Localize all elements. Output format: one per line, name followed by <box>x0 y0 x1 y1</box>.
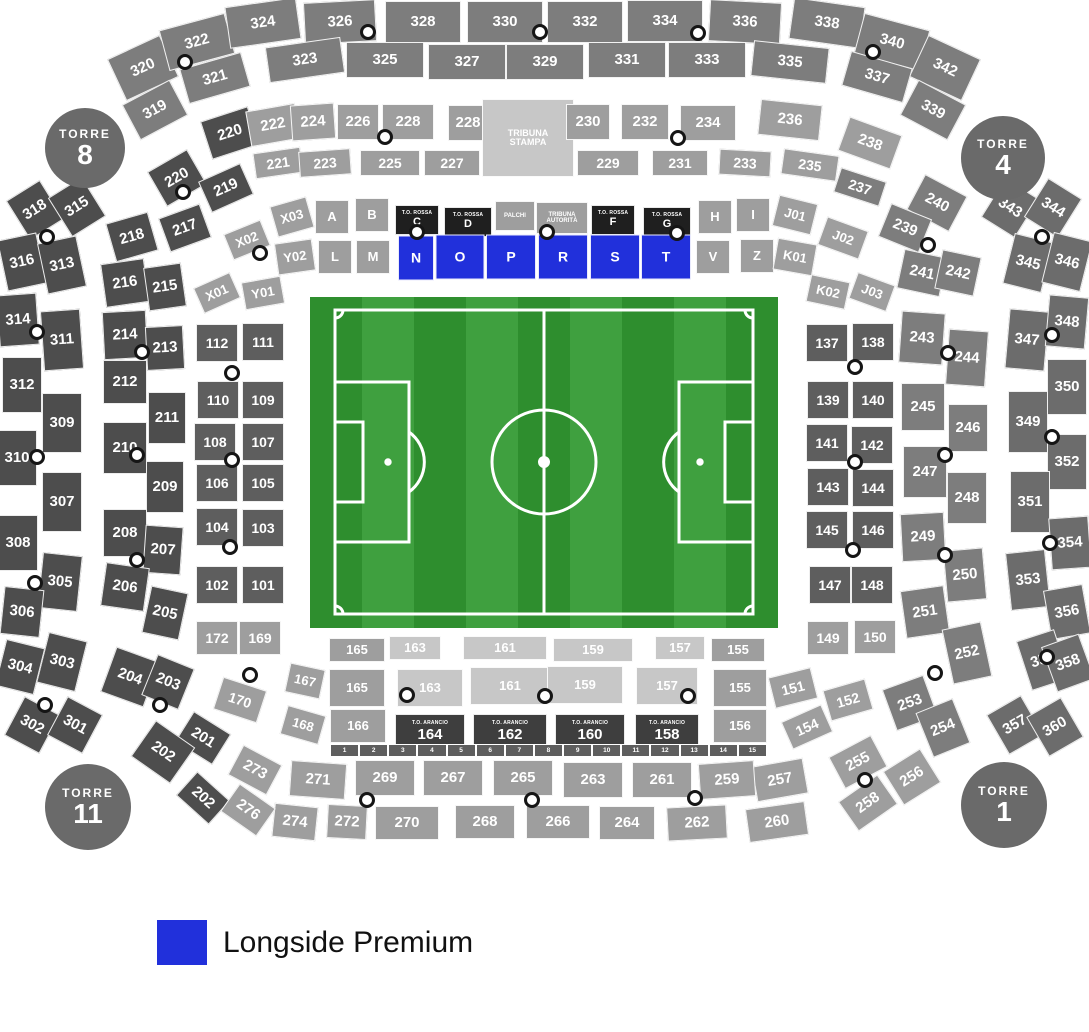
section-label: 335 <box>777 53 804 71</box>
gate-dot <box>175 184 191 200</box>
gate-dot <box>360 24 376 40</box>
section-v[interactable]: V <box>696 240 730 274</box>
section-label: 302 <box>17 712 46 738</box>
section-163[interactable]: 163 <box>389 636 441 660</box>
section-230[interactable]: 230 <box>566 104 610 140</box>
section-303[interactable]: 303 <box>36 632 87 692</box>
section-s[interactable]: S <box>590 235 640 280</box>
tower-4: TORRE4 <box>961 116 1045 200</box>
gate-dot <box>27 575 43 591</box>
section-label: 237 <box>847 176 874 197</box>
section-j01[interactable]: J01 <box>772 195 819 236</box>
section-label: 148 <box>860 578 883 593</box>
section-label: 141 <box>815 436 838 451</box>
section-label: 109 <box>251 393 274 408</box>
section-202[interactable]: 202 <box>176 771 230 824</box>
section-324[interactable]: 324 <box>224 0 301 49</box>
section-label: 106 <box>205 476 228 491</box>
section-label: 105 <box>251 476 274 491</box>
gate-dot <box>1039 649 1055 665</box>
section-label: I <box>751 208 755 222</box>
section-169[interactable]: 169 <box>239 621 281 655</box>
section-274[interactable]: 274 <box>271 803 318 841</box>
section-103[interactable]: 103 <box>242 509 284 547</box>
section-label: 248 <box>954 490 979 506</box>
section-338[interactable]: 338 <box>788 0 865 49</box>
section-t[interactable]: T <box>641 235 691 280</box>
section-145[interactable]: 145 <box>806 511 848 549</box>
section-301[interactable]: 301 <box>47 696 103 754</box>
section-304[interactable]: 304 <box>0 639 45 695</box>
section-label: V <box>709 250 718 264</box>
section-label: 316 <box>8 252 36 273</box>
section-327[interactable]: 327 <box>428 44 506 80</box>
section-label: 322 <box>183 31 211 53</box>
section-336[interactable]: 336 <box>708 0 782 45</box>
section-333[interactable]: 333 <box>668 42 746 78</box>
section-label: 240 <box>922 190 951 216</box>
section-z[interactable]: Z <box>740 239 774 273</box>
section-351[interactable]: 351 <box>1010 471 1050 533</box>
gate-dot <box>177 54 193 70</box>
row-strip-cell-5[interactable]: 5 <box>447 744 476 757</box>
section-label: 231 <box>668 156 691 171</box>
section-236[interactable]: 236 <box>757 99 822 141</box>
section-label: 217 <box>171 216 200 239</box>
section-palchi[interactable]: PALCHI <box>495 201 535 231</box>
section-label: 143 <box>816 480 839 495</box>
section-r[interactable]: R <box>538 235 588 280</box>
section-311[interactable]: 311 <box>40 309 84 372</box>
section-label: 328 <box>410 14 435 30</box>
section-label: 340 <box>878 31 906 53</box>
section-label: 352 <box>1054 454 1079 470</box>
section-110[interactable]: 110 <box>197 381 239 419</box>
section-label: 220 <box>216 122 245 145</box>
section-label: 353 <box>1015 571 1042 589</box>
section-151[interactable]: 151 <box>768 667 818 709</box>
section-223[interactable]: 223 <box>298 148 352 178</box>
section-x03[interactable]: X03 <box>269 196 314 237</box>
section-label: 165 <box>346 643 368 657</box>
section-label: 145 <box>815 523 838 538</box>
section-b[interactable]: B <box>355 198 389 232</box>
section-label: 250 <box>952 566 978 584</box>
section-j03[interactable]: J03 <box>848 272 895 312</box>
section-148[interactable]: 148 <box>851 566 893 604</box>
section-label: 157 <box>669 641 691 655</box>
section-label: 351 <box>1017 494 1042 510</box>
section-label: 274 <box>282 813 309 831</box>
section-label: 157 <box>656 679 678 693</box>
section-label: 154 <box>793 716 820 739</box>
section-272[interactable]: 272 <box>326 804 368 840</box>
section-323[interactable]: 323 <box>265 37 345 83</box>
tower-1: TORRE1 <box>961 762 1047 848</box>
row-strip-cell-14[interactable]: 14 <box>709 744 738 757</box>
section-167[interactable]: 167 <box>284 663 325 700</box>
section-139[interactable]: 139 <box>807 381 849 419</box>
section-137[interactable]: 137 <box>806 324 848 362</box>
section-335[interactable]: 335 <box>750 40 829 84</box>
section-label: 156 <box>729 719 751 733</box>
section-tribuna-stampa[interactable]: TRIBUNA STAMPA <box>482 99 574 177</box>
section-j02[interactable]: J02 <box>817 216 869 259</box>
row-strip-cell-3[interactable]: 3 <box>388 744 417 757</box>
section-109[interactable]: 109 <box>242 381 284 419</box>
section-label: 332 <box>572 14 597 30</box>
section-165[interactable]: 165 <box>329 669 385 707</box>
gate-dot <box>359 792 375 808</box>
section-308[interactable]: 308 <box>0 515 38 571</box>
section-268[interactable]: 268 <box>455 805 515 839</box>
gate-dot <box>670 130 686 146</box>
section-label: TRIBUNA AUTORITÀ <box>547 212 578 225</box>
section-270[interactable]: 270 <box>375 806 439 840</box>
section-label: 218 <box>118 226 146 248</box>
section-245[interactable]: 245 <box>901 383 945 431</box>
section-a[interactable]: A <box>315 200 349 234</box>
section-225[interactable]: 225 <box>360 150 420 176</box>
section-261[interactable]: 261 <box>632 762 692 798</box>
section-o[interactable]: O <box>436 235 485 280</box>
row-strip-cell-7[interactable]: 7 <box>505 744 534 757</box>
section-label: 205 <box>151 603 179 624</box>
section-213[interactable]: 213 <box>145 325 185 371</box>
section-252[interactable]: 252 <box>942 621 993 684</box>
row-strip-cell-2[interactable]: 2 <box>359 744 388 757</box>
section-155[interactable]: 155 <box>713 669 767 707</box>
section-350[interactable]: 350 <box>1047 359 1087 415</box>
section-label: 161 <box>494 641 516 655</box>
section-label: Z <box>753 249 761 263</box>
section-label: 228 <box>395 114 420 130</box>
section-label: O <box>455 250 466 265</box>
section-label: 139 <box>816 393 839 408</box>
section-label: K01 <box>782 248 808 266</box>
section-label: 155 <box>729 681 751 695</box>
section-305[interactable]: 305 <box>37 552 83 612</box>
section-232[interactable]: 232 <box>621 104 669 140</box>
row-strip-cell-12[interactable]: 12 <box>650 744 679 757</box>
section-label: 329 <box>532 54 557 70</box>
row-strip-cell-4[interactable]: 4 <box>417 744 446 757</box>
section-label: 104 <box>205 520 228 535</box>
section-label: 149 <box>816 631 839 646</box>
section-330[interactable]: 330 <box>467 1 543 43</box>
section-label: 350 <box>1054 379 1079 395</box>
section-label: Y01 <box>250 284 275 301</box>
section-221[interactable]: 221 <box>252 147 303 179</box>
section-349[interactable]: 349 <box>1008 391 1048 453</box>
section-257[interactable]: 257 <box>751 758 808 802</box>
section-306[interactable]: 306 <box>0 586 44 638</box>
section-159[interactable]: 159 <box>547 666 623 704</box>
section-218[interactable]: 218 <box>105 212 158 263</box>
section-label: 265 <box>510 770 535 786</box>
section-label: 108 <box>203 435 226 450</box>
section-label: 347 <box>1014 331 1040 349</box>
section-label: 311 <box>49 331 74 348</box>
row-strip-cell-13[interactable]: 13 <box>680 744 709 757</box>
section-154[interactable]: 154 <box>781 704 833 749</box>
section-328[interactable]: 328 <box>385 1 461 43</box>
section-label: 226 <box>345 114 370 130</box>
section-155[interactable]: 155 <box>711 638 765 662</box>
section-217[interactable]: 217 <box>158 204 212 253</box>
section-147[interactable]: 147 <box>809 566 851 604</box>
section-246[interactable]: 246 <box>948 404 988 452</box>
section-l[interactable]: L <box>318 240 352 274</box>
section-label: 164 <box>417 727 442 743</box>
section-label: 324 <box>250 13 277 32</box>
section-label: 163 <box>419 681 441 695</box>
gate-dot <box>129 552 145 568</box>
section-233[interactable]: 233 <box>718 149 771 178</box>
section-d[interactable]: T.O. ROSSAD <box>444 207 492 237</box>
section-237[interactable]: 237 <box>833 167 887 207</box>
section-157[interactable]: 157 <box>655 636 705 660</box>
section-label: 360 <box>1040 714 1070 740</box>
section-264[interactable]: 264 <box>599 806 655 840</box>
gate-dot <box>687 790 703 806</box>
gate-dot <box>524 792 540 808</box>
gate-dot <box>134 344 150 360</box>
section-143[interactable]: 143 <box>807 468 849 506</box>
section-211[interactable]: 211 <box>148 392 186 444</box>
section-label: 151 <box>780 678 806 698</box>
section-label: 103 <box>251 521 274 536</box>
gate-dot <box>39 229 55 245</box>
section-label: 165 <box>346 681 368 695</box>
section-label: J01 <box>783 206 807 224</box>
section-label: 327 <box>454 54 479 70</box>
section-label: N <box>411 251 421 266</box>
section-209[interactable]: 209 <box>146 461 184 513</box>
section-y01[interactable]: Y01 <box>241 276 285 311</box>
section-102[interactable]: 102 <box>196 566 238 604</box>
section-label: 345 <box>1014 252 1042 273</box>
section-label: D <box>464 219 472 231</box>
section-label: 110 <box>207 393 230 408</box>
section-144[interactable]: 144 <box>852 469 894 507</box>
section-label: 239 <box>890 216 919 240</box>
section-243[interactable]: 243 <box>898 311 946 366</box>
section-label: 160 <box>577 727 602 743</box>
section-x01[interactable]: X01 <box>193 272 241 314</box>
section-216[interactable]: 216 <box>100 258 150 308</box>
section-label: 169 <box>248 631 271 646</box>
section-332[interactable]: 332 <box>547 1 623 43</box>
gate-dot <box>29 324 45 340</box>
row-strip-cell-6[interactable]: 6 <box>476 744 505 757</box>
section-label: 339 <box>918 97 947 123</box>
section-label: 161 <box>499 679 521 693</box>
tower-number: 11 <box>73 800 103 828</box>
section-265[interactable]: 265 <box>493 760 553 796</box>
gate-dot <box>539 224 555 240</box>
section-205[interactable]: 205 <box>141 586 188 641</box>
section-label: 214 <box>112 326 138 343</box>
section-label: 305 <box>47 573 74 591</box>
section-i[interactable]: I <box>736 198 770 232</box>
section-label: L <box>331 250 339 264</box>
section-label: 263 <box>580 772 605 788</box>
section-label: 261 <box>649 772 674 788</box>
row-strip-cell-8[interactable]: 8 <box>534 744 563 757</box>
section-219[interactable]: 219 <box>198 163 254 213</box>
section-label: 229 <box>596 156 619 171</box>
row-strip-cell-15[interactable]: 15 <box>738 744 767 757</box>
section-label: 167 <box>293 672 317 690</box>
section-360[interactable]: 360 <box>1026 697 1084 757</box>
section-k01[interactable]: K01 <box>773 238 818 276</box>
section-331[interactable]: 331 <box>588 42 666 78</box>
section-161[interactable]: 161 <box>463 636 547 660</box>
section-label: 170 <box>227 689 254 710</box>
section-label: R <box>558 250 568 265</box>
section-206[interactable]: 206 <box>100 562 150 612</box>
row-strip-cell-10[interactable]: 10 <box>592 744 621 757</box>
section-h[interactable]: H <box>698 200 732 234</box>
section-label: 256 <box>897 764 927 791</box>
section-156[interactable]: 156 <box>713 709 767 743</box>
section-138[interactable]: 138 <box>852 323 894 361</box>
section-172[interactable]: 172 <box>196 621 238 655</box>
gate-dot <box>224 452 240 468</box>
section-label: 150 <box>863 630 886 645</box>
section-224[interactable]: 224 <box>290 103 336 142</box>
section-312[interactable]: 312 <box>2 357 42 413</box>
section-label: 308 <box>5 535 30 551</box>
section-329[interactable]: 329 <box>506 44 584 80</box>
gate-dot <box>242 667 258 683</box>
section-227[interactable]: 227 <box>424 150 480 176</box>
section-111[interactable]: 111 <box>242 323 284 361</box>
section-215[interactable]: 215 <box>143 263 187 312</box>
section-p[interactable]: P <box>486 235 536 280</box>
section-165[interactable]: 165 <box>329 638 385 662</box>
section-label: 107 <box>251 435 274 450</box>
section-112[interactable]: 112 <box>196 324 238 362</box>
section-m[interactable]: M <box>356 240 390 274</box>
section-label: 162 <box>497 727 522 743</box>
section-label: 306 <box>9 603 36 621</box>
section-269[interactable]: 269 <box>355 760 415 796</box>
section-168[interactable]: 168 <box>280 705 327 745</box>
section-260[interactable]: 260 <box>745 801 809 843</box>
section-label: 315 <box>62 194 92 221</box>
row-strip-cell-9[interactable]: 9 <box>563 744 592 757</box>
section-347[interactable]: 347 <box>1004 308 1049 371</box>
section-label: 244 <box>954 349 980 366</box>
section-208[interactable]: 208 <box>103 509 147 557</box>
section-259[interactable]: 259 <box>698 760 756 800</box>
section-271[interactable]: 271 <box>289 760 347 800</box>
section-label: H <box>710 210 719 224</box>
gate-dot <box>129 447 145 463</box>
section-label: 338 <box>814 13 841 32</box>
section-label: 246 <box>955 420 980 436</box>
section-325[interactable]: 325 <box>346 42 424 78</box>
section-label: 245 <box>910 399 935 415</box>
section-label: 336 <box>732 13 758 30</box>
section-242[interactable]: 242 <box>934 249 981 296</box>
section-263[interactable]: 263 <box>563 762 623 798</box>
section-309[interactable]: 309 <box>42 393 82 453</box>
section-229[interactable]: 229 <box>577 150 639 176</box>
section-label: 144 <box>861 481 884 496</box>
section-label: 270 <box>394 815 419 831</box>
row-strip-cell-11[interactable]: 11 <box>621 744 650 757</box>
section-label: 325 <box>372 52 397 68</box>
gate-dot <box>1044 429 1060 445</box>
section-149[interactable]: 149 <box>807 621 849 655</box>
section-152[interactable]: 152 <box>822 679 873 722</box>
row-strip-cell-1[interactable]: 1 <box>330 744 359 757</box>
section-label: 313 <box>48 255 76 276</box>
section-101[interactable]: 101 <box>242 566 284 604</box>
section-266[interactable]: 266 <box>526 805 590 839</box>
section-159[interactable]: 159 <box>553 638 633 662</box>
section-label: 334 <box>652 13 677 29</box>
section-label: TRIBUNA STAMPA <box>508 129 549 148</box>
section-label: 168 <box>291 715 316 734</box>
section-label: 206 <box>112 577 139 596</box>
section-n[interactable]: N <box>398 236 434 281</box>
section-307[interactable]: 307 <box>42 472 82 532</box>
section-label: 216 <box>112 273 139 292</box>
section-238[interactable]: 238 <box>838 117 903 170</box>
section-140[interactable]: 140 <box>852 381 894 419</box>
section-106[interactable]: 106 <box>196 464 238 502</box>
gate-dot <box>669 225 685 241</box>
stadium-map: Longside Premium 32032232432632833033233… <box>0 0 1089 1032</box>
section-label: 111 <box>252 335 274 350</box>
section-267[interactable]: 267 <box>423 760 483 796</box>
section-k02[interactable]: K02 <box>806 274 851 310</box>
section-248[interactable]: 248 <box>947 472 987 524</box>
section-262[interactable]: 262 <box>666 804 728 841</box>
section-107[interactable]: 107 <box>242 423 284 461</box>
section-label: 142 <box>860 438 883 453</box>
section-y02[interactable]: Y02 <box>274 239 316 276</box>
section-label: 357 <box>1000 712 1030 738</box>
section-label: 301 <box>60 712 89 738</box>
section-105[interactable]: 105 <box>242 464 284 502</box>
tower-number: 8 <box>77 141 93 169</box>
section-235[interactable]: 235 <box>780 148 839 182</box>
tower-11: TORRE11 <box>45 764 131 850</box>
section-label: 211 <box>155 410 179 426</box>
section-231[interactable]: 231 <box>652 150 708 176</box>
gate-dot <box>37 697 53 713</box>
section-f[interactable]: T.O. ROSSAF <box>591 205 635 235</box>
section-label: 251 <box>912 602 939 621</box>
gate-dot <box>377 129 393 145</box>
section-label: X01 <box>204 282 231 304</box>
section-234[interactable]: 234 <box>680 105 736 141</box>
section-label: 140 <box>861 393 884 408</box>
section-212[interactable]: 212 <box>103 360 147 404</box>
section-label: 314 <box>5 311 31 328</box>
section-226[interactable]: 226 <box>337 104 379 140</box>
section-150[interactable]: 150 <box>854 620 896 654</box>
section-166[interactable]: 166 <box>330 709 386 743</box>
section-label: 333 <box>694 52 719 68</box>
section-170[interactable]: 170 <box>213 677 267 724</box>
section-141[interactable]: 141 <box>806 424 848 462</box>
